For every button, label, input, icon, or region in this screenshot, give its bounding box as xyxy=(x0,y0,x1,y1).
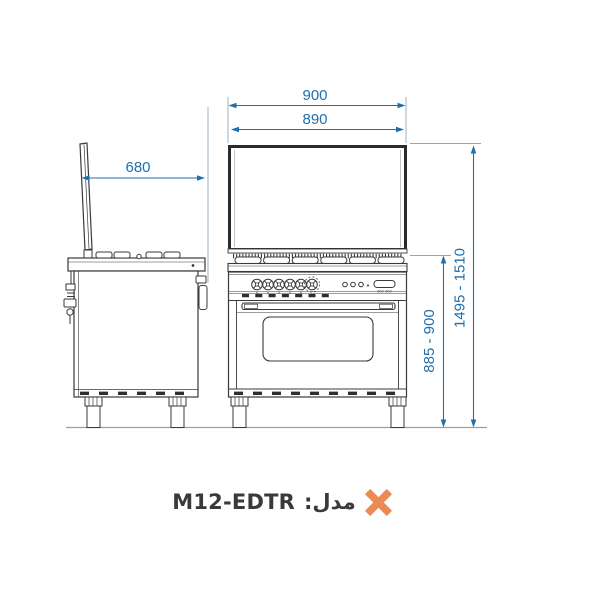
dimension-height-overall: 1495 - 1510 xyxy=(452,146,477,428)
dimension-label-885-900: 885 - 900 xyxy=(421,309,438,372)
cooktop-front-band xyxy=(228,264,407,272)
arrowhead xyxy=(471,420,477,428)
model-caption: مدل: M12-EDTR xyxy=(0,484,582,520)
timer-display: 000 000 xyxy=(374,281,395,294)
arrowhead xyxy=(471,146,477,154)
diagram-canvas: 000 000 xyxy=(0,0,600,600)
dimension-label-680: 680 xyxy=(125,159,150,176)
leg-foot xyxy=(87,406,100,428)
arrowhead xyxy=(231,127,239,133)
leg-adjuster xyxy=(85,397,102,406)
cooktop-side xyxy=(68,258,205,271)
pan-supports xyxy=(235,257,404,264)
oven-window xyxy=(263,317,373,361)
side-legs xyxy=(85,397,186,428)
dimension-label-900: 900 xyxy=(302,87,327,104)
dimension-depth: 680 xyxy=(82,159,206,181)
side-view xyxy=(64,143,207,428)
dimension-label-1495-1510: 1495 - 1510 xyxy=(452,248,469,328)
pan-support xyxy=(349,257,375,264)
brand-x-icon xyxy=(365,489,392,516)
burner-cap xyxy=(114,252,130,258)
dimension-label-890: 890 xyxy=(302,111,327,128)
burner-knob xyxy=(304,277,319,292)
arrowhead xyxy=(441,420,447,428)
leg-adjuster xyxy=(231,397,248,406)
indicator-light xyxy=(359,282,364,287)
pan-support xyxy=(378,257,404,264)
leg-foot xyxy=(391,406,404,428)
dimension-width-glass: 890 xyxy=(231,111,404,132)
arrowhead xyxy=(441,256,447,264)
pan-support xyxy=(321,257,347,264)
dimension-width-overall: 900 xyxy=(229,87,406,108)
handle-profile xyxy=(199,286,207,310)
burner-cap xyxy=(164,252,180,258)
burner-cap-small xyxy=(137,254,141,258)
arrowhead xyxy=(197,175,205,181)
leg-foot xyxy=(171,406,184,428)
model-value: M12-EDTR xyxy=(172,490,295,514)
front-legs xyxy=(231,397,406,428)
gas-valve-knob xyxy=(67,309,73,315)
indicator-dot xyxy=(367,285,369,287)
pan-support xyxy=(235,257,261,264)
glass-lid-panel xyxy=(230,147,406,250)
gas-valve xyxy=(64,299,76,307)
leg-adjuster xyxy=(169,397,186,406)
dimension-height-cooktop: 885 - 900 xyxy=(421,256,446,428)
arrowhead xyxy=(398,103,406,109)
arrowhead xyxy=(229,103,237,109)
glass-lid-side xyxy=(80,143,92,250)
indicator-light xyxy=(343,282,348,287)
knob-profile xyxy=(196,276,206,283)
front-view: 000 000 xyxy=(228,147,407,428)
lid-sill xyxy=(228,249,407,253)
oven-handle xyxy=(242,303,395,310)
pan-support xyxy=(264,257,290,264)
leg-adjuster xyxy=(389,397,406,406)
leg-foot xyxy=(233,406,246,428)
timer-display-window xyxy=(374,281,395,288)
burner-cap xyxy=(96,252,112,258)
burner-caps-side xyxy=(96,252,180,259)
cooktop-screw xyxy=(192,264,195,267)
body-side xyxy=(74,271,198,397)
arrowhead xyxy=(396,127,404,133)
timer-digits: 000 000 xyxy=(377,290,392,294)
pan-support xyxy=(292,257,318,264)
indicator-light xyxy=(351,282,356,287)
model-label: مدل: xyxy=(304,490,356,514)
burner-cap xyxy=(146,252,162,258)
gas-elbow xyxy=(66,284,75,290)
